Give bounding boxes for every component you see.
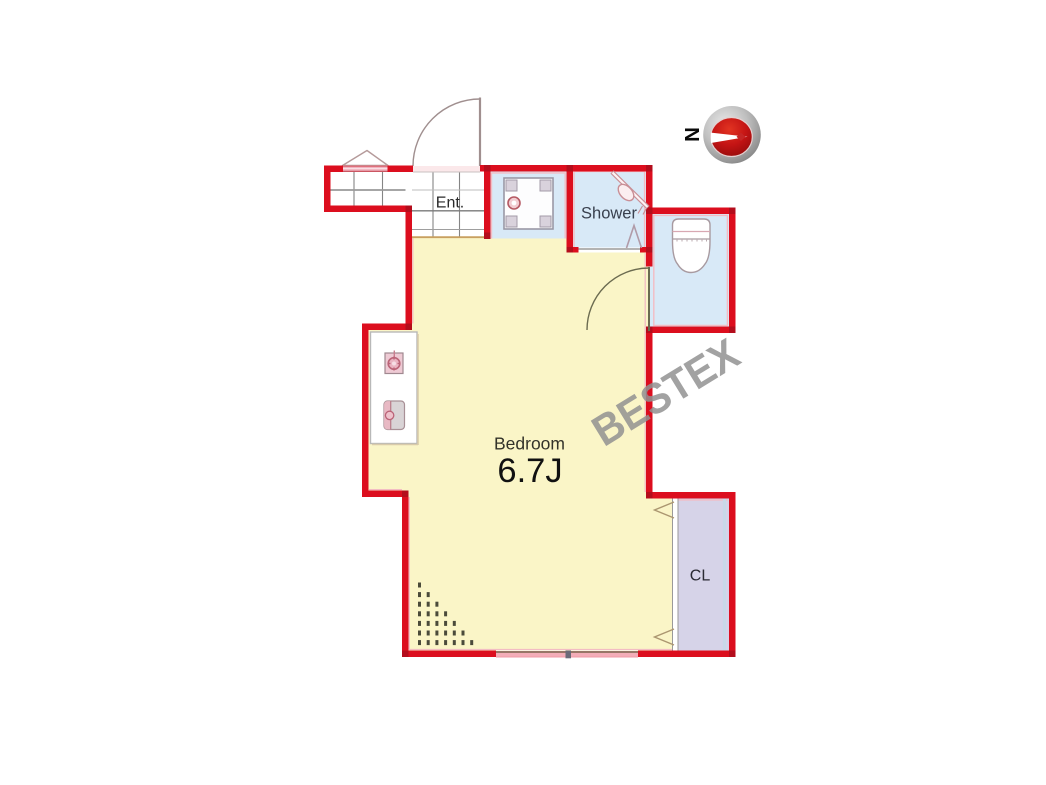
svg-text:N: N xyxy=(681,127,704,142)
svg-text:CL: CL xyxy=(690,568,711,585)
svg-text:Bedroom: Bedroom xyxy=(494,434,565,454)
svg-text:Shower: Shower xyxy=(581,205,637,223)
svg-text:6.7J: 6.7J xyxy=(497,452,562,490)
svg-text:Ent.: Ent. xyxy=(436,195,464,212)
